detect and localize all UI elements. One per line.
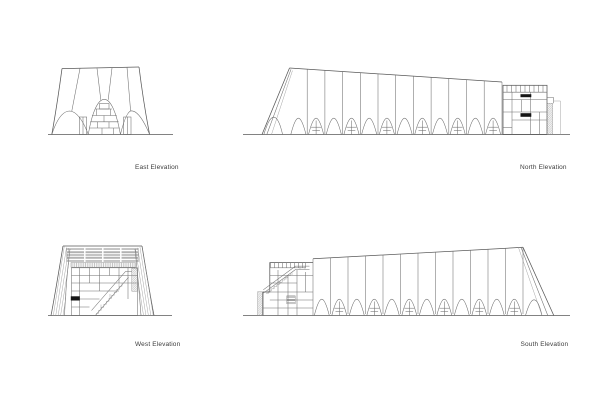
elevation-sheet: East Elevation North Elevation West Elev… [0, 0, 600, 400]
elevations-drawing [0, 0, 600, 400]
west-elevation-label: West Elevation [135, 341, 180, 349]
north-elevation-drawing [243, 68, 570, 135]
west-elevation-drawing [48, 246, 172, 316]
south-elevation-label: South Elevation [521, 341, 569, 349]
north-elevation-label: North Elevation [520, 164, 567, 172]
east-elevation-label: East Elevation [135, 164, 179, 172]
south-elevation-drawing [243, 247, 570, 315]
east-elevation-drawing [48, 67, 173, 135]
